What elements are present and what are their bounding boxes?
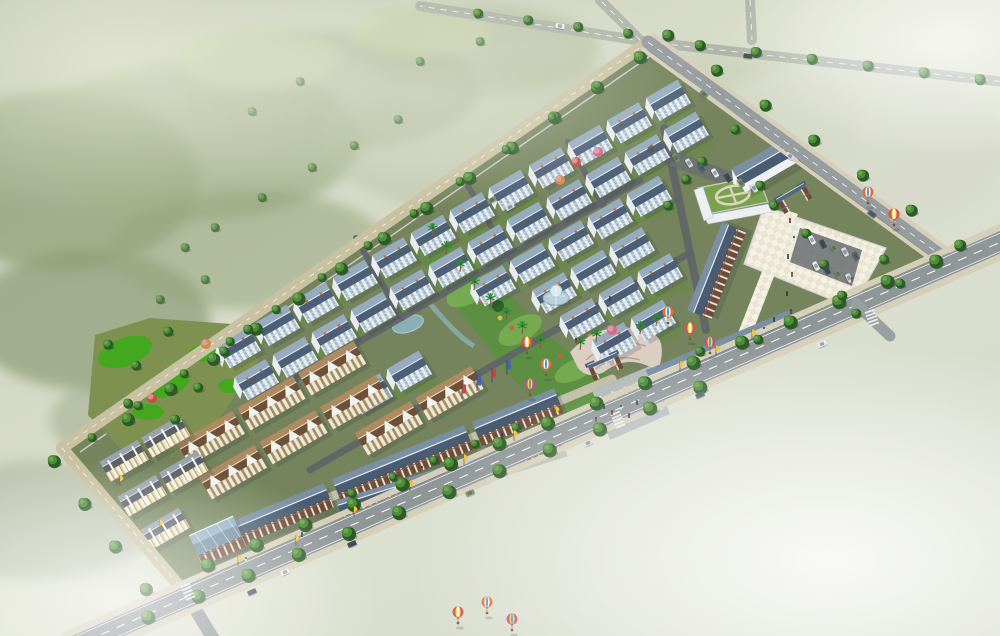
person [791,272,793,277]
person [789,218,791,223]
autumn-tree [147,393,157,403]
person [575,338,577,343]
person [787,254,789,259]
person [609,296,611,301]
person [786,291,788,296]
autumn-tree [607,325,617,335]
scene-canvas [0,0,1000,636]
person [790,309,792,314]
autumn-tree [201,339,211,349]
flower-bed [558,354,563,359]
person [793,236,795,241]
person [763,327,765,332]
flower-bed [498,316,503,321]
person [851,277,853,282]
person [773,317,775,322]
aerial-rendering-residential-community [0,0,1000,636]
flower-bed [510,326,515,331]
person [421,466,423,471]
